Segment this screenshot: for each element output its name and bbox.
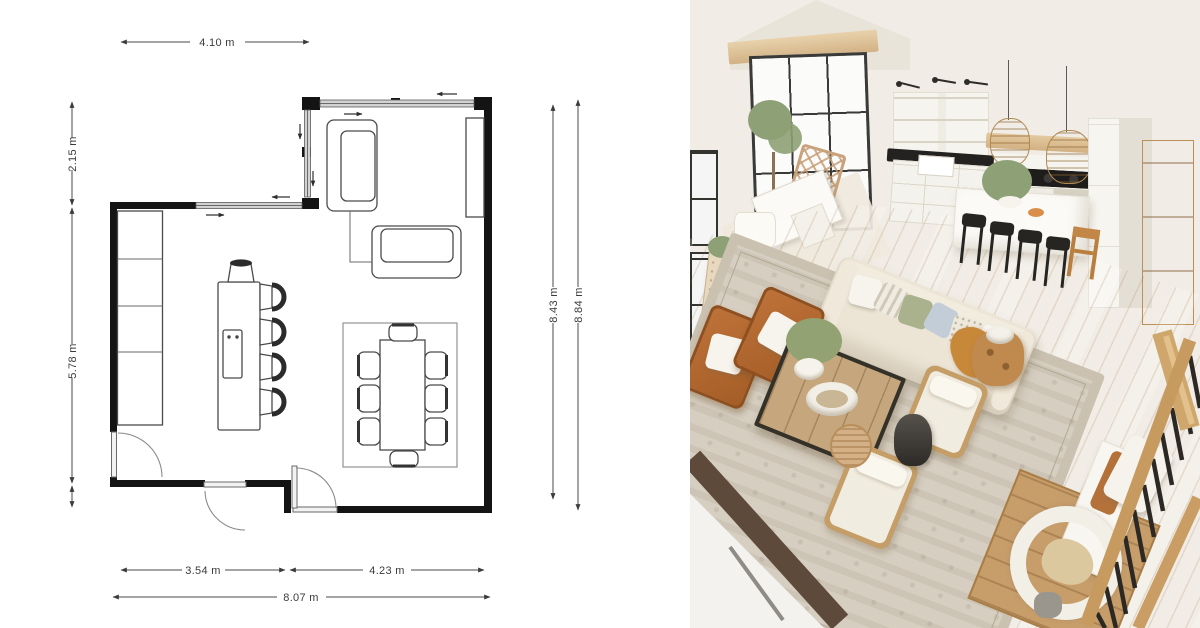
dim-right-inner: 8.43 m: [548, 287, 560, 322]
woven-basket: [830, 424, 872, 468]
dim-left-upper: 2.15 m: [67, 136, 79, 171]
farmhouse-sink: [917, 155, 954, 177]
rattan-pendant-1: [990, 118, 1030, 166]
door-left: [112, 432, 163, 477]
walls: [110, 97, 492, 513]
island-vase: [998, 196, 1022, 208]
gray-pot: [1034, 592, 1062, 618]
door-bottom-exterior: [204, 482, 246, 530]
wall-sconce-3: [964, 79, 970, 85]
coffee-table-greenery: [786, 318, 842, 364]
side-window-1: [690, 150, 718, 246]
dining-table: [380, 340, 425, 450]
dim-bottom-right: 4.23 m: [369, 565, 404, 577]
bar-stool-top: [228, 264, 254, 282]
white-bowl: [794, 358, 824, 380]
wall-sconce-1: [896, 81, 902, 87]
sink: [223, 330, 242, 378]
screenshot: 4.10 m 2.15 m 5.78 m 8.43 m 8.84 m 3.54 …: [0, 0, 1200, 628]
pebbles: [816, 390, 848, 408]
wall-sconce-2: [932, 77, 938, 83]
interior-photo: [690, 0, 1200, 628]
rattan-pendant-2: [1046, 130, 1092, 184]
black-planter: [894, 414, 932, 466]
door-entry: [292, 466, 337, 512]
decor-bowl: [986, 326, 1014, 344]
fruit-bowl: [1028, 208, 1044, 217]
dining-set: [343, 323, 457, 467]
pendant-cord-1: [1008, 60, 1009, 120]
dim-left-lower: 5.78 m: [67, 343, 79, 378]
living-set: [327, 118, 484, 278]
shelving-unit: [118, 211, 163, 425]
pendant-cord-2: [1066, 66, 1067, 132]
bar-stool-photo: [983, 221, 1016, 276]
kitchen-island: [218, 259, 284, 430]
floor-plan-panel: 4.10 m 2.15 m 5.78 m 8.43 m 8.84 m 3.54 …: [0, 0, 690, 628]
floor-plan-drawing: 4.10 m 2.15 m 5.78 m 8.43 m 8.84 m 3.54 …: [0, 0, 690, 628]
bar-stools-right: [260, 284, 284, 415]
furniture: [118, 118, 485, 467]
dim-right-outer: 8.84 m: [573, 287, 585, 322]
media-cabinet: [466, 118, 484, 217]
dim-bottom-left: 3.54 m: [185, 565, 220, 577]
dim-bottom-total: 8.07 m: [283, 592, 318, 604]
dim-top-width: 4.10 m: [199, 37, 234, 49]
tree-foliage: [768, 122, 802, 154]
bar-stool-photo: [955, 213, 988, 268]
